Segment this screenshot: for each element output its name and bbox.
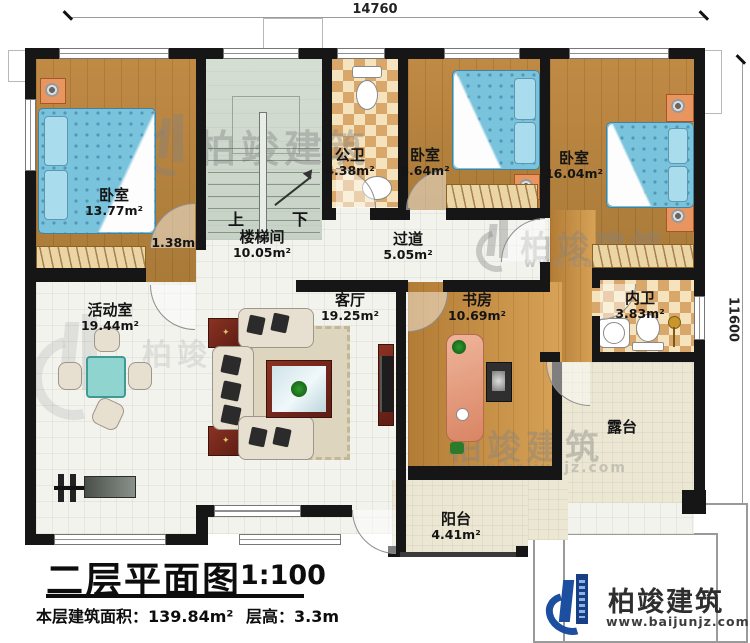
- lamp-icon: [671, 209, 685, 223]
- room-area: 10.69m²: [438, 309, 516, 323]
- room-area: 19.25m²: [313, 309, 387, 323]
- wall: [408, 466, 562, 480]
- room-area: 16.04m²: [536, 167, 612, 181]
- wall-post: [516, 546, 528, 557]
- room-name: 书房: [438, 292, 516, 309]
- sink-icon: [603, 322, 625, 344]
- monitor-icon: [486, 362, 512, 402]
- knob-icon: ✦: [222, 329, 230, 338]
- plan-scale: 1:100: [240, 560, 326, 591]
- wall: [300, 505, 352, 517]
- toilet-icon: [356, 80, 378, 110]
- window: [60, 49, 168, 58]
- living-label: 客厅 19.25m²: [313, 292, 387, 323]
- room-area: 13.77m²: [74, 204, 154, 218]
- stair-divider: [259, 112, 267, 240]
- monitor-screen: [492, 371, 505, 391]
- wall: [322, 59, 332, 220]
- room-name: 露台: [594, 419, 650, 436]
- lamp-icon: [45, 83, 59, 97]
- door-activity: [150, 285, 195, 330]
- stair-up-label: 上: [228, 206, 244, 230]
- watermark-logo-bar: [173, 114, 183, 162]
- room-area: 10.05m²: [226, 246, 298, 260]
- wall: [540, 262, 550, 282]
- room-name: 卧室: [395, 147, 455, 164]
- toilet-tank: [352, 66, 382, 78]
- window: [215, 506, 300, 516]
- room-area: 4.41m²: [428, 528, 484, 542]
- room-area: 3.83m²: [608, 307, 672, 321]
- wall: [196, 59, 206, 250]
- plant-icon: [291, 381, 307, 397]
- wall: [592, 268, 694, 280]
- window: [26, 100, 35, 170]
- exercise-bench-bar: [54, 486, 84, 490]
- dimension-tick: [699, 10, 709, 20]
- study-label: 书房 10.69m²: [438, 292, 516, 323]
- wall: [592, 316, 600, 352]
- window: [570, 49, 668, 58]
- inner-bath-label: 内卫 3.83m²: [608, 290, 672, 321]
- shower-stem: [673, 327, 675, 347]
- door-balcony: [352, 510, 396, 554]
- door-arc: [546, 362, 590, 406]
- dimension-tick: [736, 54, 746, 64]
- wall: [592, 352, 705, 362]
- cabinet: ✦: [208, 426, 242, 456]
- window: [338, 49, 384, 58]
- wall: [540, 352, 560, 362]
- brand-logo-icon: [545, 572, 603, 634]
- dimension-right-value: 11600: [726, 291, 741, 349]
- window: [224, 49, 298, 58]
- pillow: [44, 116, 68, 166]
- room-name: 卧室: [536, 150, 612, 167]
- wardrobe: [592, 244, 694, 268]
- flowerpot-icon: [450, 442, 464, 454]
- activity-label: 活动室 19.44m²: [68, 302, 152, 333]
- door-arc: [501, 218, 545, 262]
- toilet-tank: [632, 342, 664, 351]
- pillow: [668, 128, 688, 164]
- corridor-label: 1.38m²: [142, 236, 210, 250]
- dimension-line-top: [68, 17, 706, 18]
- door-terrace: [546, 362, 590, 406]
- floor-height-label: 层高：3.3m: [246, 603, 339, 627]
- room-area: 1.38m²: [142, 236, 210, 250]
- room-area: 4.38m²: [320, 164, 380, 178]
- door-bedroom3: [501, 218, 545, 262]
- room-name: 过道: [372, 231, 444, 248]
- chair: [58, 362, 82, 390]
- pillow: [514, 122, 536, 164]
- wall: [322, 208, 336, 220]
- tv-icon: [380, 356, 393, 412]
- window: [240, 535, 340, 544]
- wall: [694, 48, 705, 494]
- lamp-icon: [671, 99, 685, 113]
- plant-icon: [452, 340, 466, 354]
- exercise-bench: [84, 476, 136, 498]
- room-area: 8.64m²: [395, 164, 455, 178]
- pillow: [514, 78, 536, 120]
- duvet: [608, 124, 662, 206]
- wall: [370, 208, 398, 220]
- brand-logo-windows: [579, 580, 585, 618]
- brand-website: www.baijunjz.com: [606, 614, 750, 629]
- room-area: 5.05m²: [372, 248, 444, 262]
- nightstand: [666, 94, 694, 122]
- dimension-top-value: 14760: [340, 2, 410, 17]
- room-name: 公卫: [320, 147, 380, 164]
- bedroom3-label: 卧室 16.04m²: [536, 150, 612, 181]
- wall-post: [682, 490, 706, 514]
- room-name: 阳台: [428, 511, 484, 528]
- room-name: 客厅: [313, 292, 387, 309]
- wall: [396, 280, 406, 472]
- room-name: 活动室: [68, 302, 152, 319]
- nightstand: [40, 78, 66, 104]
- room-name: 卧室: [74, 187, 154, 204]
- window: [695, 297, 704, 339]
- wall: [540, 59, 550, 218]
- bedroom2-label: 卧室 8.64m²: [395, 147, 455, 178]
- dimension-line-right: [742, 60, 743, 555]
- wall: [200, 505, 215, 517]
- floor-area-value: 139.84m²: [148, 607, 233, 626]
- pillow: [668, 166, 688, 202]
- pillow: [44, 170, 68, 220]
- floor-height-value: 3.3m: [294, 607, 339, 626]
- dimension-tick: [63, 10, 73, 20]
- hallway-label: 过道 5.05m²: [372, 231, 444, 262]
- chair: [128, 362, 152, 390]
- stair-down-label: 下: [292, 206, 308, 230]
- wall: [396, 466, 406, 556]
- sofa-cushion: [220, 354, 241, 375]
- floor-area-caption: 本层建筑面积：: [36, 607, 148, 626]
- sofa-cushion: [220, 380, 241, 401]
- knob-icon: ✦: [222, 437, 230, 446]
- table: [86, 356, 126, 398]
- title-underline: [46, 594, 304, 598]
- floor-height-caption: 层高：: [246, 607, 294, 626]
- room-name: 楼梯间: [226, 229, 298, 246]
- wall: [36, 268, 146, 282]
- duvet: [454, 72, 510, 168]
- door-arc: [150, 285, 195, 330]
- floor-area-label: 本层建筑面积：139.84m²: [36, 603, 233, 627]
- bedroom1-label: 卧室 13.77m²: [74, 187, 154, 218]
- terrace-floor: [528, 480, 568, 540]
- wardrobe: [446, 184, 538, 210]
- room-area: 19.44m²: [68, 319, 152, 333]
- room-name: 内卫: [608, 290, 672, 307]
- wall: [592, 280, 600, 288]
- terrace-label: 露台: [594, 419, 650, 436]
- window: [55, 535, 165, 544]
- public-bath-label: 公卫 4.38m²: [320, 147, 380, 178]
- wall: [443, 280, 550, 292]
- nightstand: [666, 204, 694, 232]
- balcony-parapet: [392, 552, 528, 557]
- cabinet: ✦: [208, 318, 242, 348]
- cup: [456, 408, 469, 421]
- floor-plan: 14760 11600 柏竣建筑 柏竣建筑 www.baijunjz.com 柏…: [0, 0, 750, 643]
- balcony-label: 阳台 4.41m²: [428, 511, 484, 542]
- stairwell-label: 楼梯间 10.05m²: [226, 229, 298, 260]
- door-arc: [352, 510, 396, 554]
- window: [445, 49, 519, 58]
